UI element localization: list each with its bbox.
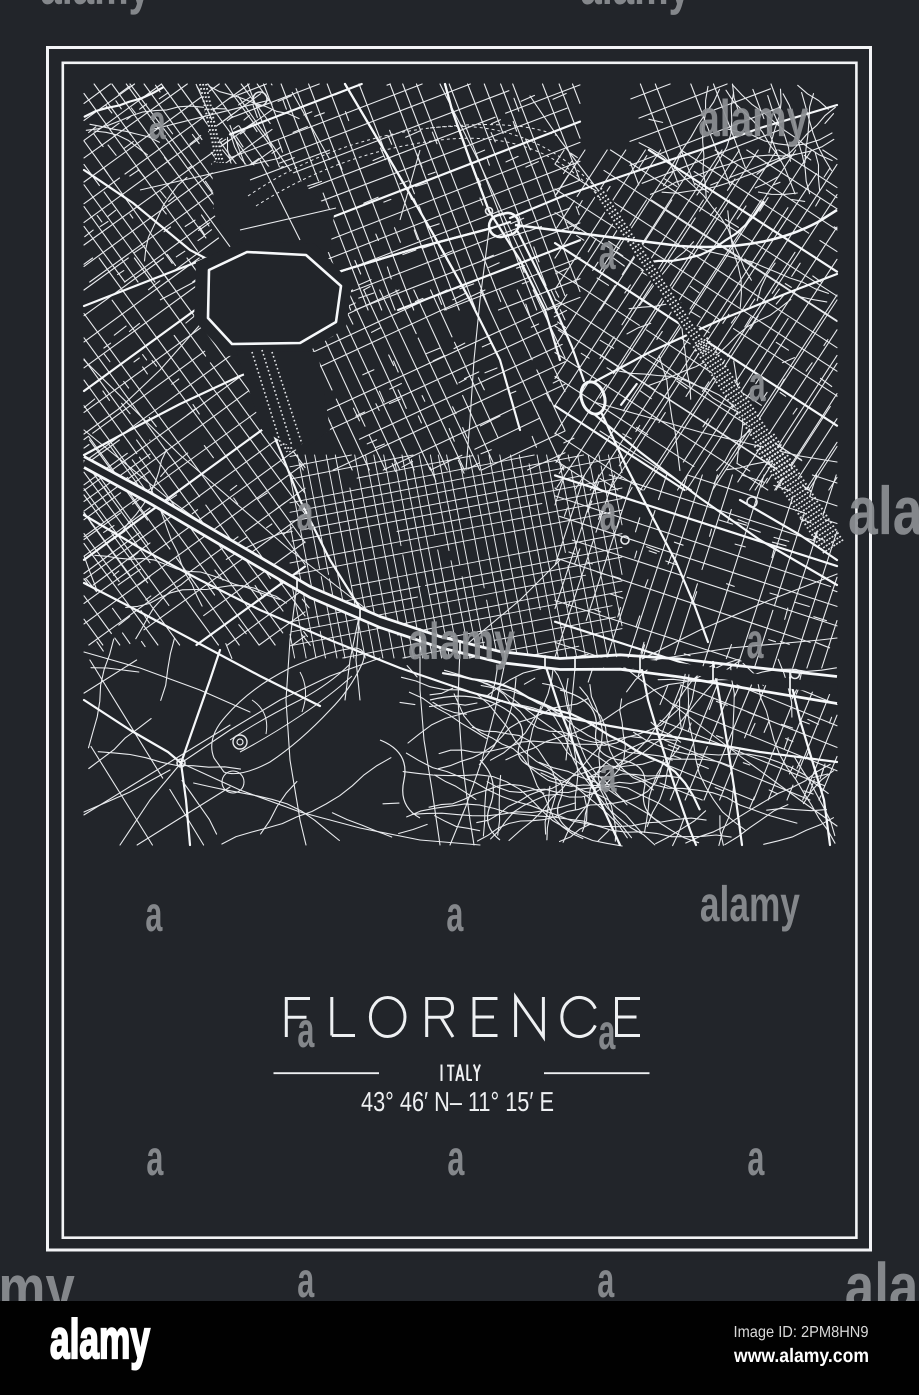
svg-text:a: a [149,94,167,150]
svg-text:a: a [599,747,617,803]
svg-text:a: a [145,886,163,942]
svg-text:a: a [297,1252,315,1308]
svg-text:a: a [447,1130,465,1186]
svg-text:alamy: alamy [700,876,800,932]
svg-text:43° 46′ N– 11° 15′ E: 43° 46′ N– 11° 15′ E [361,1086,554,1117]
svg-text:alamy: alamy [698,90,808,148]
svg-text:a: a [446,886,464,942]
svg-text:www.alamy.com: www.alamy.com [733,1345,869,1367]
svg-text:alamy: alamy [848,473,919,549]
svg-text:a: a [747,1130,765,1186]
svg-text:Image ID: 2PM8HN9: Image ID: 2PM8HN9 [733,1324,868,1341]
svg-text:a: a [297,485,315,541]
svg-text:a: a [146,1130,164,1186]
svg-text:a: a [600,485,618,541]
svg-text:a: a [598,1004,616,1060]
svg-text:a: a [597,1252,615,1308]
svg-text:a: a [749,356,767,412]
svg-text:alamy: alamy [40,0,150,16]
svg-text:a: a [747,613,765,669]
svg-text:alamy: alamy [50,1308,150,1370]
svg-text:alamy: alamy [580,0,690,16]
svg-text:a: a [297,1002,315,1058]
svg-text:a: a [599,224,617,280]
svg-text:alamy: alamy [408,613,515,671]
